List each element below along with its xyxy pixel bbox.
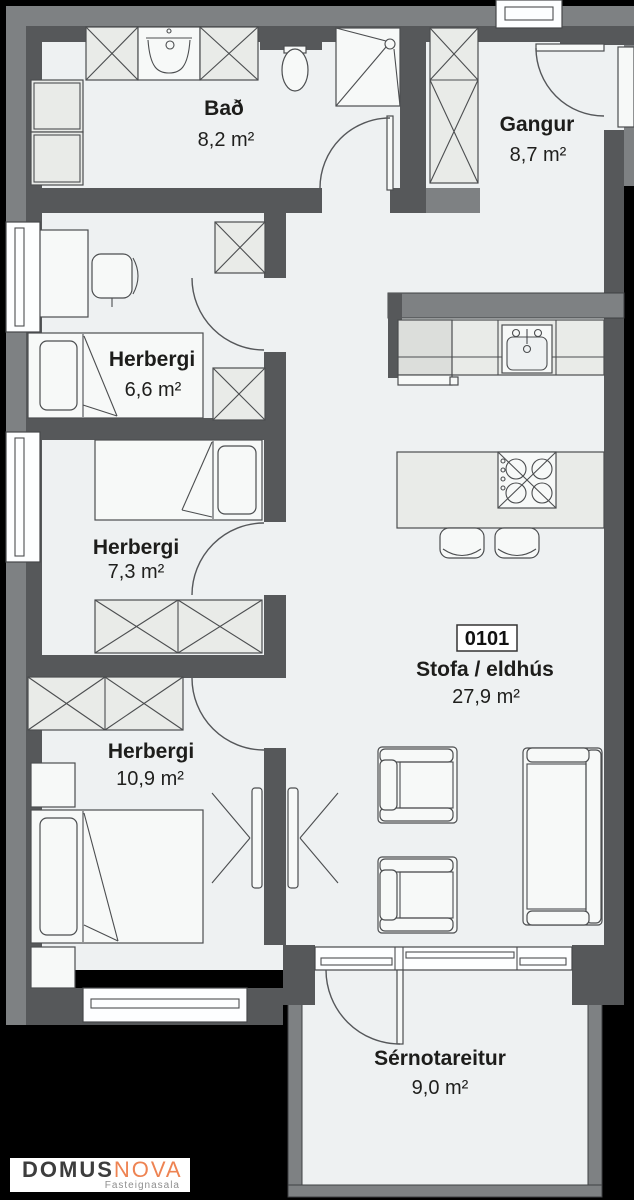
- label-herbergi-2: Herbergi: [93, 536, 179, 559]
- patio-floor: [296, 960, 592, 1190]
- label-herbergi-1: Herbergi: [109, 348, 195, 371]
- window-hall: [496, 0, 562, 28]
- wall-kitchen: [388, 293, 624, 318]
- sofa: [523, 748, 602, 925]
- area-herbergi-2: 7,3 m²: [108, 561, 165, 583]
- door-leaf-bathroom: [387, 116, 393, 190]
- patio-wall-bottom: [288, 1185, 602, 1197]
- washer: [31, 80, 83, 132]
- window-bedroom1: [6, 222, 40, 332]
- bed-pillow: [40, 341, 77, 410]
- area-sernotareitur: 9,0 m²: [412, 1077, 469, 1099]
- wall-right-inner: [604, 26, 624, 970]
- patio-door-leaf: [397, 970, 403, 1044]
- label-sernotareitur: Sérnotareitur: [374, 1047, 506, 1070]
- label-gangur: Gangur: [500, 113, 575, 136]
- armchair: [378, 747, 457, 823]
- counter-return: [398, 375, 452, 385]
- area-herbergi-3: 10,9 m²: [116, 768, 184, 790]
- wall-south-block-right: [572, 945, 624, 1005]
- tall-unit: [398, 320, 452, 375]
- sink-cabinet: [138, 27, 200, 80]
- bar-stool: [440, 528, 484, 558]
- desk-chair: [92, 254, 132, 298]
- agency-logo: DOMUSNOVA Fasteignasala: [10, 1158, 190, 1192]
- bed-pillow: [40, 818, 77, 935]
- bar-stool: [495, 528, 539, 558]
- wall-between-herbergi-2-3: [28, 655, 286, 678]
- wall-bath-divider: [400, 42, 426, 198]
- area-gangur: 8,7 m²: [510, 144, 567, 166]
- label-stofa: Stofa / eldhús: [416, 658, 554, 681]
- bedroom3-furniture: [28, 677, 203, 988]
- bed-pillow: [218, 446, 256, 514]
- toilet-bowl: [282, 49, 308, 91]
- floor-plan-svg: Bað 8,2 m² Gangur 8,7 m² Herbergi 6,6 m²…: [0, 0, 634, 1200]
- wall-under-wardrobe: [426, 188, 480, 213]
- entrance-door-leaf: [536, 44, 604, 51]
- wall-south-block-left: [283, 945, 315, 1005]
- area-stofa: 27,9 m²: [452, 686, 520, 708]
- wall-between-herbergi-1-2: [28, 418, 286, 440]
- unit-number: 0101: [465, 628, 510, 650]
- label-bad: Bað: [204, 97, 244, 120]
- area-herbergi-1: 6,6 m²: [125, 379, 182, 401]
- wall-bath-south-stub: [390, 188, 426, 213]
- armchair: [378, 857, 457, 933]
- nightstand: [31, 947, 75, 988]
- area-bad: 8,2 m²: [198, 129, 255, 151]
- entrance-door-panel: [618, 47, 634, 127]
- label-herbergi-3: Herbergi: [108, 740, 194, 763]
- wall-bedrooms-east-1: [264, 198, 286, 278]
- wall-bedrooms-east-4: [264, 748, 286, 945]
- sliding-panel: [288, 788, 298, 888]
- dryer: [31, 132, 83, 185]
- logo-brand: DOMUSNOVA: [22, 1160, 180, 1180]
- hall-wardrobe: [430, 28, 478, 183]
- nightstand: [31, 763, 75, 807]
- desk: [37, 230, 88, 317]
- logo-domus: DOMUS: [22, 1157, 114, 1182]
- sliding-panel: [252, 788, 262, 888]
- floor-plan: Bað 8,2 m² Gangur 8,7 m² Herbergi 6,6 m²…: [0, 0, 634, 1200]
- logo-nova: NOVA: [114, 1157, 183, 1182]
- window-bedroom3: [83, 988, 247, 1022]
- window-bedroom2: [6, 432, 40, 562]
- wardrobe-tall: [430, 28, 478, 183]
